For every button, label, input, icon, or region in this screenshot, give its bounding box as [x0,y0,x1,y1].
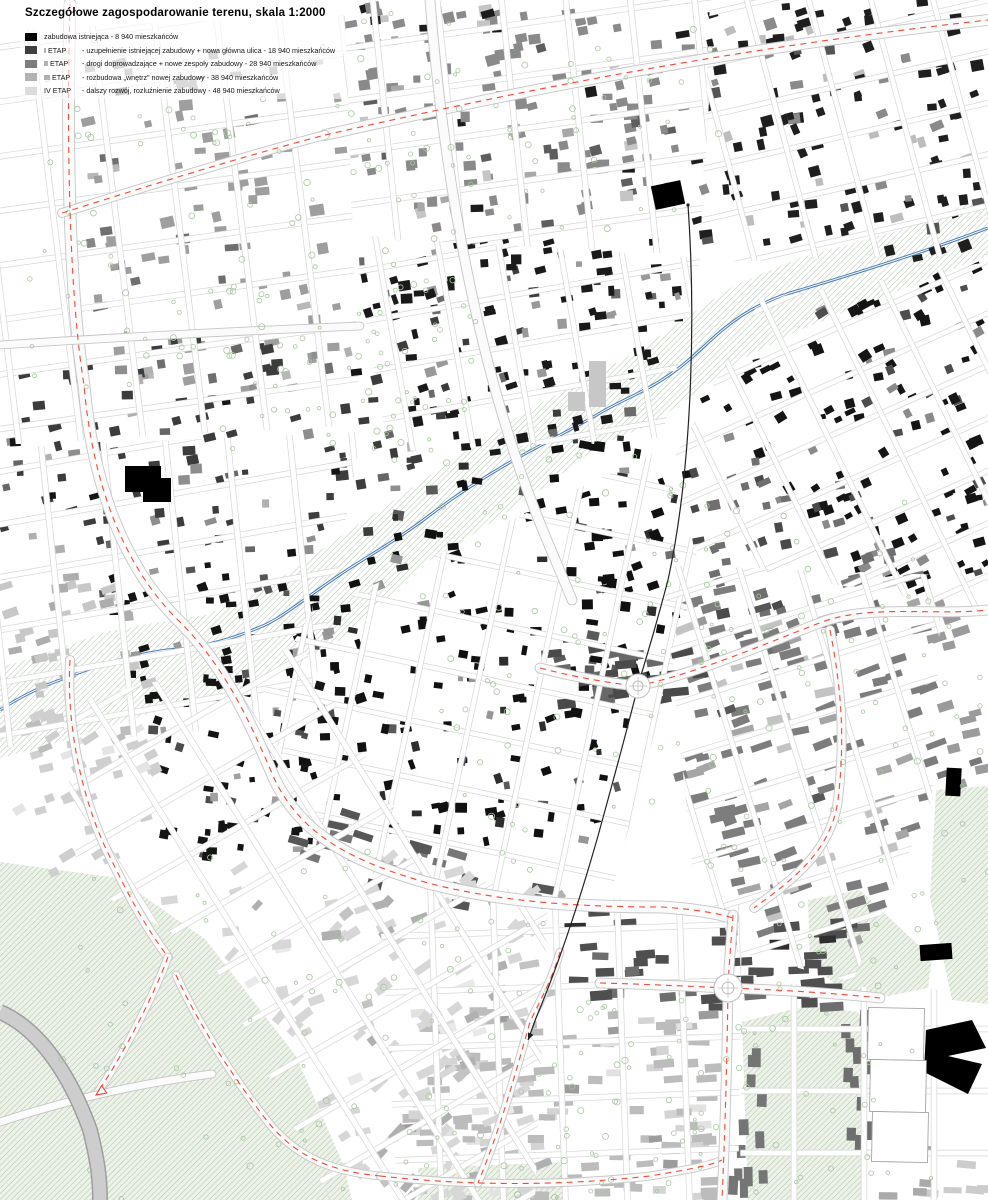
legend-swatch-etap-2 [25,60,37,68]
legend-item-existing: zabudowa istniejąca - 8 940 mieszkańców [25,32,335,41]
legend-item-label: II ETAP [44,59,82,68]
legend-item-etap-2: II ETAP - drogi doprowadzające + nowe ze… [25,59,335,68]
legend-swatch-etap-1 [25,46,37,54]
legend-swatch-etap-3 [25,73,37,81]
legend-item-label: III ETAP [44,73,82,82]
legend-item-desc: - drogi doprowadzające + nowe zespoły za… [82,59,316,68]
legend-item-desc: - uzupełnienie istniejącej zabudowy + no… [82,46,335,55]
map-canvas [0,0,988,1200]
legend-item-label: zabudowa istniejąca - 8 940 mieszkańców [44,32,178,41]
legend-item-desc: - rozbudowa „wnętrz” nowej zabudowy - 38… [82,73,278,82]
legend-item-desc: - dalszy rozwój, rozluźnienie zabudowy -… [82,86,280,95]
legend-item-etap-3: III ETAP - rozbudowa „wnętrz” nowej zabu… [25,73,335,82]
legend-title: Szczegółowe zagospodarowanie terenu, ska… [25,7,335,19]
legend-items: zabudowa istniejąca - 8 940 mieszkańców … [25,32,335,95]
legend: Szczegółowe zagospodarowanie terenu, ska… [20,2,343,99]
legend-item-label: IV ETAP [44,86,82,95]
legend-swatch-etap-4 [25,87,37,95]
map-document: Szczegółowe zagospodarowanie terenu, ska… [0,0,988,1200]
legend-item-etap-4: IV ETAP - dalszy rozwój, rozluźnienie za… [25,86,335,95]
legend-swatch-existing [25,33,37,41]
legend-item-etap-1: I ETAP - uzupełnienie istniejącej zabudo… [25,46,335,55]
legend-item-label: I ETAP [44,46,82,55]
